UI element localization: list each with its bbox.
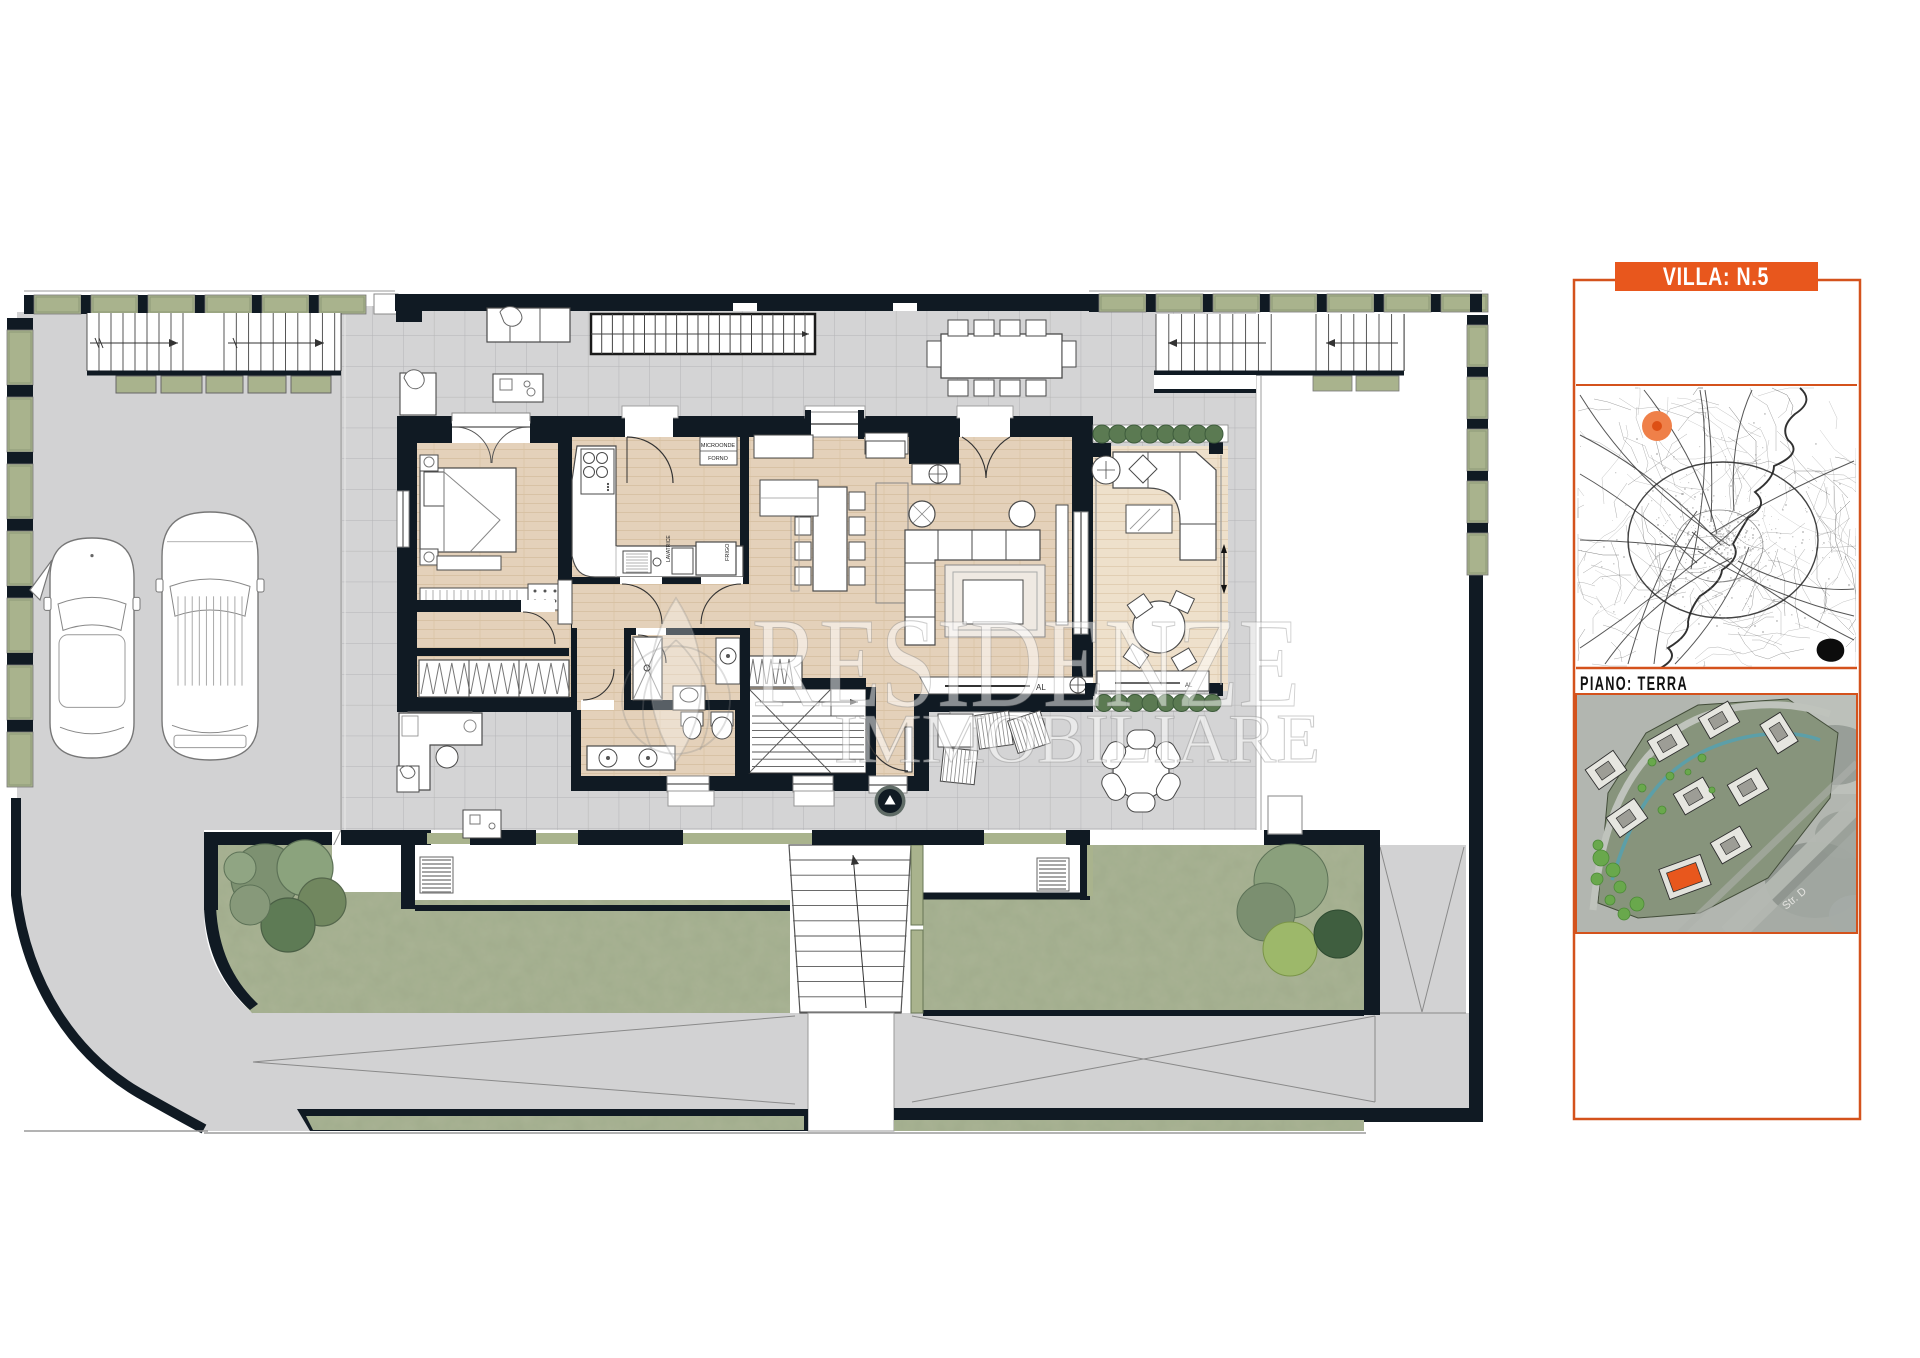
svg-text:PIANO: TERRA: PIANO: TERRA [1580,674,1688,695]
svg-text:MICROONDE: MICROONDE [701,443,736,449]
svg-text:FRIGO: FRIGO [725,543,731,561]
svg-text:FORNO: FORNO [708,456,729,462]
svg-text:LAVATRICE: LAVATRICE [666,535,672,562]
svg-text:VILLA: N.5: VILLA: N.5 [1663,263,1769,291]
svg-text:IMMOBILIARE: IMMOBILIARE [834,701,1320,778]
